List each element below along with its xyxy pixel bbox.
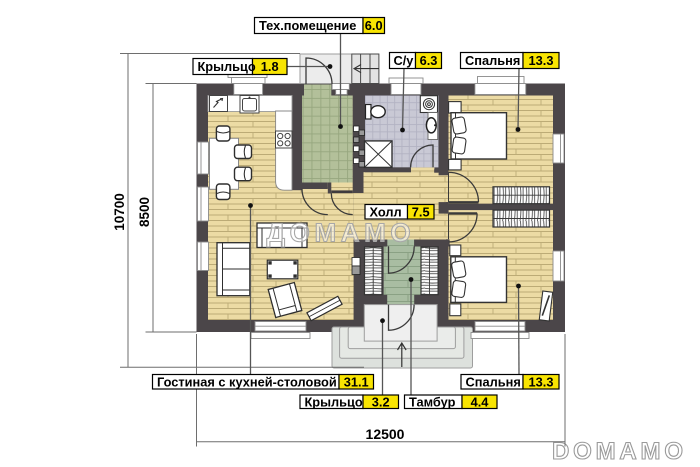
svg-text:Спальня: Спальня	[465, 53, 520, 68]
svg-text:13.3: 13.3	[529, 375, 554, 390]
svg-text:Тех.помещение: Тех.помещение	[259, 18, 356, 33]
svg-text:Холл: Холл	[370, 205, 402, 220]
svg-text:1.8: 1.8	[261, 59, 279, 74]
svg-text:С/у: С/у	[394, 53, 415, 68]
svg-text:10700: 10700	[112, 193, 127, 231]
svg-text:6.3: 6.3	[420, 53, 438, 68]
svg-text:Тамбур: Тамбур	[409, 395, 456, 410]
svg-text:Спальня: Спальня	[466, 375, 521, 390]
svg-text:31.1: 31.1	[344, 375, 369, 390]
svg-text:DOMAMO: DOMAMO	[552, 438, 687, 465]
svg-text:13.3: 13.3	[529, 53, 554, 68]
svg-text:8500: 8500	[137, 197, 152, 227]
svg-text:Гостиная с кухней-столовой: Гостиная с кухней-столовой	[157, 375, 337, 390]
svg-text:3.2: 3.2	[372, 395, 390, 410]
svg-text:Крыльцо: Крыльцо	[305, 395, 363, 410]
svg-text:ДОМАМО: ДОМАМО	[267, 218, 416, 248]
svg-text:7.5: 7.5	[412, 205, 430, 220]
svg-text:12500: 12500	[366, 426, 405, 442]
svg-text:6.0: 6.0	[365, 18, 383, 33]
svg-text:Крыльцо: Крыльцо	[198, 59, 256, 74]
svg-text:4.4: 4.4	[471, 395, 490, 410]
